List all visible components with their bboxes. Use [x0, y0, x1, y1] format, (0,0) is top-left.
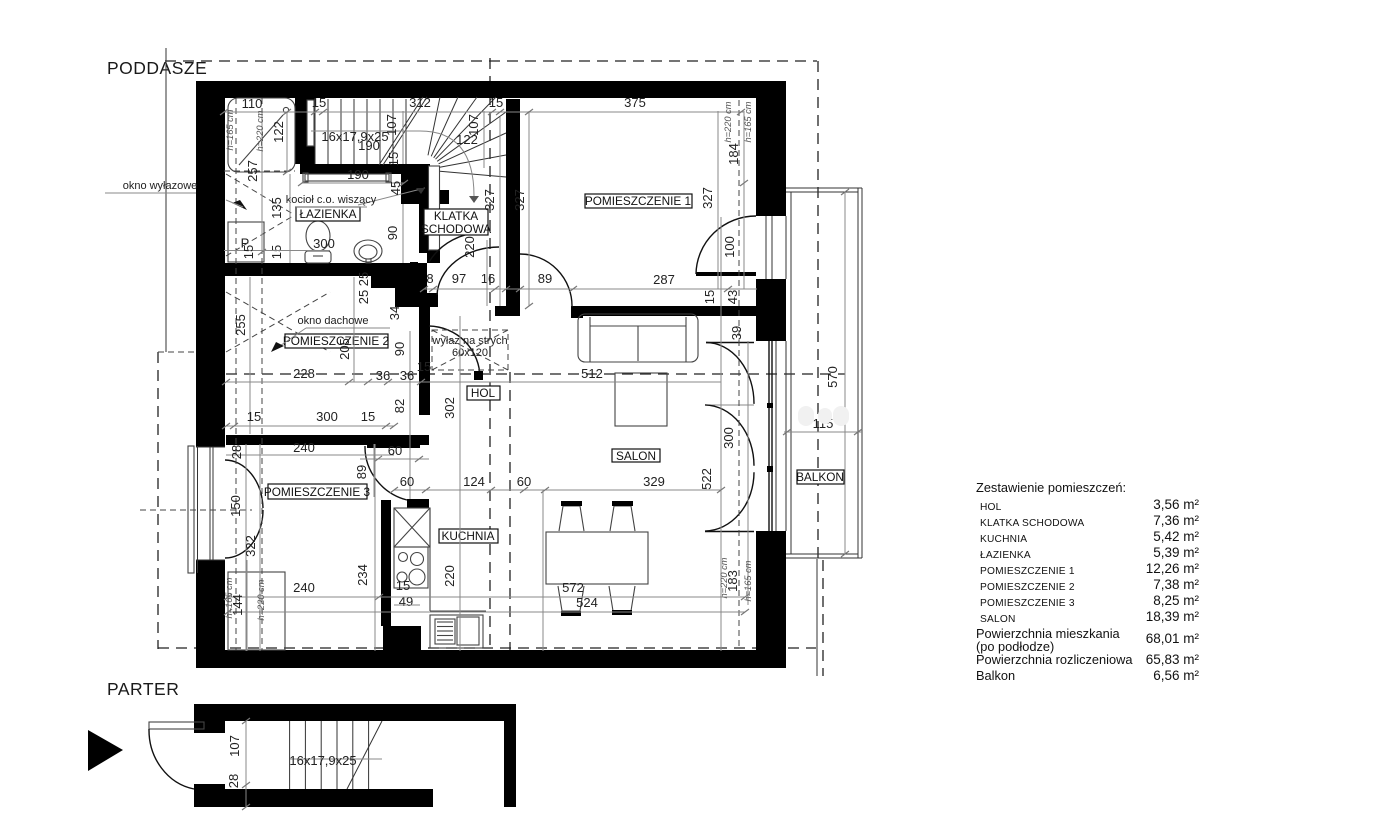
svg-text:7,38 m²: 7,38 m²	[1153, 577, 1199, 592]
svg-text:POMIESZCZENIE 1: POMIESZCZENIE 1	[980, 566, 1075, 577]
svg-text:65,83 m²: 65,83 m²	[1146, 652, 1200, 667]
svg-text:Balkon: Balkon	[976, 668, 1015, 683]
svg-text:190: 190	[347, 167, 369, 182]
svg-text:90: 90	[385, 226, 400, 240]
svg-text:okno dachowe: okno dachowe	[298, 315, 369, 327]
svg-text:h=165 cm: h=165 cm	[743, 101, 753, 142]
svg-text:302: 302	[442, 397, 457, 419]
svg-text:18,39 m²: 18,39 m²	[1146, 609, 1200, 624]
svg-text:122: 122	[271, 121, 286, 143]
svg-text:SALON: SALON	[980, 614, 1016, 625]
svg-text:150: 150	[228, 495, 243, 517]
svg-text:15: 15	[241, 245, 256, 259]
svg-text:36: 36	[400, 368, 414, 383]
svg-text:15: 15	[312, 95, 326, 110]
svg-text:Powierzchnia rozliczeniowa: Powierzchnia rozliczeniowa	[976, 652, 1133, 667]
svg-text:184: 184	[726, 143, 741, 165]
svg-text:POMIESZCZENIE 3: POMIESZCZENIE 3	[980, 598, 1075, 609]
svg-text:60: 60	[400, 474, 414, 489]
svg-text:h=220 cm: h=220 cm	[256, 579, 266, 620]
svg-text:15: 15	[396, 578, 410, 593]
svg-text:228: 228	[293, 366, 315, 381]
svg-text:190: 190	[358, 138, 380, 153]
svg-text:327: 327	[482, 189, 497, 211]
svg-text:60: 60	[517, 474, 531, 489]
svg-text:KLATKA: KLATKA	[434, 209, 478, 223]
svg-text:KLATKA SCHODOWA: KLATKA SCHODOWA	[980, 518, 1084, 529]
svg-text:234: 234	[355, 564, 370, 586]
svg-text:60: 60	[388, 443, 402, 458]
svg-text:257: 257	[245, 160, 260, 182]
svg-text:329: 329	[643, 474, 665, 489]
svg-text:327: 327	[512, 189, 527, 211]
svg-text:28: 28	[226, 774, 241, 788]
svg-text:255: 255	[233, 314, 248, 336]
svg-text:25: 25	[356, 290, 371, 304]
svg-text:89: 89	[354, 465, 369, 479]
svg-text:16x17,9x25: 16x17,9x25	[289, 753, 356, 768]
svg-text:36: 36	[376, 368, 390, 383]
svg-text:KUCHNIA: KUCHNIA	[441, 529, 494, 543]
svg-text:BALKON: BALKON	[796, 470, 844, 484]
svg-text:8,25 m²: 8,25 m²	[1153, 593, 1199, 608]
svg-text:h=165 cm: h=165 cm	[225, 109, 235, 150]
svg-text:60x120: 60x120	[452, 347, 488, 359]
svg-text:327: 327	[700, 187, 715, 209]
svg-text:220: 220	[442, 565, 457, 587]
svg-text:15: 15	[247, 409, 261, 424]
svg-text:6,56 m²: 6,56 m²	[1153, 668, 1199, 683]
svg-text:220: 220	[462, 236, 477, 258]
svg-text:100: 100	[722, 236, 737, 258]
svg-text:HOL: HOL	[471, 386, 496, 400]
svg-text:POMIESZCZENIE 1: POMIESZCZENIE 1	[585, 194, 691, 208]
svg-text:ŁAZIENKA: ŁAZIENKA	[980, 550, 1031, 561]
svg-text:POMIESZCZENIE 2: POMIESZCZENIE 2	[980, 582, 1075, 593]
svg-text:SALON: SALON	[616, 449, 656, 463]
svg-text:312: 312	[409, 95, 431, 110]
svg-text:240: 240	[293, 580, 315, 595]
svg-text:15: 15	[702, 290, 717, 304]
svg-text:12,26 m²: 12,26 m²	[1146, 561, 1200, 576]
svg-text:287: 287	[653, 272, 675, 287]
svg-text:5,42 m²: 5,42 m²	[1153, 529, 1199, 544]
svg-text:15: 15	[361, 409, 375, 424]
svg-text:240: 240	[293, 440, 315, 455]
svg-text:89: 89	[538, 271, 552, 286]
svg-text:kocioł c.o. wiszący: kocioł c.o. wiszący	[286, 194, 377, 206]
svg-text:512: 512	[581, 366, 603, 381]
svg-text:300: 300	[721, 427, 736, 449]
svg-text:110: 110	[242, 96, 263, 111]
svg-text:68,01 m²: 68,01 m²	[1146, 631, 1200, 646]
svg-text:375: 375	[624, 95, 646, 110]
svg-text:okno wyłazowe: okno wyłazowe	[123, 180, 198, 192]
svg-text:49: 49	[399, 594, 413, 609]
svg-text:3,56 m²: 3,56 m²	[1153, 497, 1199, 512]
svg-text:h=220 cm: h=220 cm	[719, 557, 729, 598]
svg-text:300: 300	[316, 409, 338, 424]
svg-text:43: 43	[725, 290, 740, 304]
svg-text:572: 572	[562, 580, 584, 595]
svg-text:POMIESZCZENIE 2: POMIESZCZENIE 2	[283, 334, 389, 348]
svg-text:39: 39	[729, 326, 744, 340]
svg-text:124: 124	[463, 474, 485, 489]
svg-text:570: 570	[825, 366, 840, 388]
svg-text:15: 15	[417, 359, 431, 374]
svg-text:322: 322	[243, 535, 258, 557]
svg-text:Zestawienie pomieszczeń:: Zestawienie pomieszczeń:	[976, 480, 1126, 495]
svg-text:15: 15	[489, 95, 503, 110]
svg-text:5,39 m²: 5,39 m²	[1153, 545, 1199, 560]
svg-text:wyłaz na strych: wyłaz na strych	[431, 335, 507, 347]
svg-text:90: 90	[392, 342, 407, 356]
svg-text:SCHODOWA: SCHODOWA	[421, 222, 491, 236]
svg-text:POMIESZCZENIE 3: POMIESZCZENIE 3	[264, 485, 371, 499]
svg-text:h=220 cm: h=220 cm	[723, 101, 733, 142]
svg-text:28: 28	[229, 445, 244, 459]
svg-text:135: 135	[269, 197, 284, 219]
svg-text:25: 25	[356, 272, 371, 286]
svg-text:KUCHNIA: KUCHNIA	[980, 534, 1027, 545]
svg-text:34: 34	[387, 306, 402, 320]
svg-text:15: 15	[269, 245, 284, 259]
svg-text:107: 107	[227, 735, 242, 757]
svg-text:300: 300	[313, 236, 335, 251]
svg-text:HOL: HOL	[980, 502, 1002, 513]
svg-text:15: 15	[386, 152, 401, 166]
svg-text:7,36 m²: 7,36 m²	[1153, 513, 1199, 528]
svg-text:8: 8	[426, 271, 433, 286]
svg-text:h=165 cm: h=165 cm	[224, 577, 234, 618]
svg-text:522: 522	[699, 468, 714, 490]
svg-text:205: 205	[337, 338, 352, 360]
svg-text:45: 45	[388, 181, 403, 195]
svg-text:524: 524	[576, 595, 598, 610]
svg-text:122: 122	[456, 132, 478, 147]
svg-text:107: 107	[384, 114, 399, 136]
svg-text:PARTER: PARTER	[107, 679, 179, 699]
svg-text:h=220 cm: h=220 cm	[255, 110, 265, 151]
svg-text:82: 82	[392, 399, 407, 413]
svg-text:ŁAZIENKA: ŁAZIENKA	[299, 207, 356, 221]
svg-text:97: 97	[452, 271, 466, 286]
svg-text:16: 16	[481, 271, 495, 286]
